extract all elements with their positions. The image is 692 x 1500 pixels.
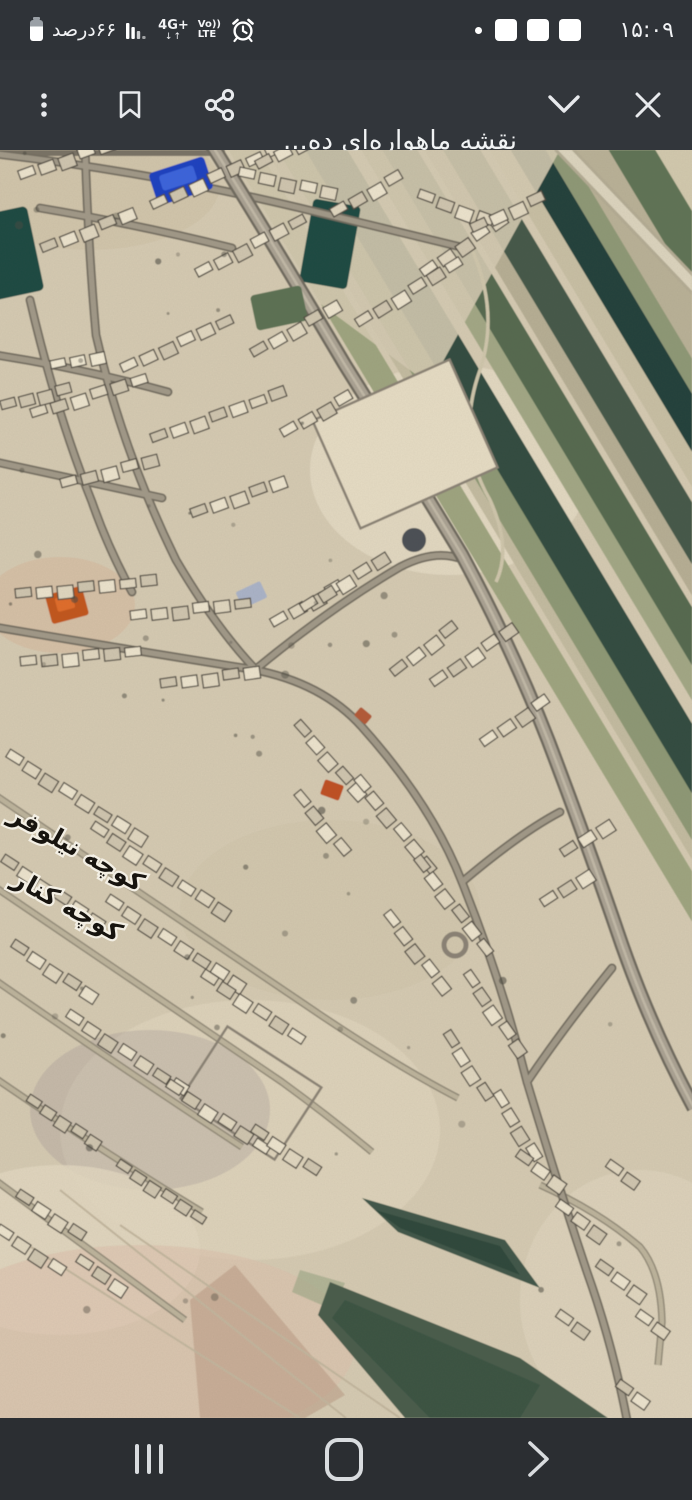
bookmark-button[interactable] xyxy=(102,60,158,150)
volte-indicator: Vo)) LTE xyxy=(198,20,221,40)
recents-button[interactable] xyxy=(118,1429,180,1489)
browser-header-bar: نقشه ماهواره‌ای ده... topomap.ir xyxy=(0,60,692,150)
status-bar: ۶۶درصد 4G+ ↓↑ Vo)) LTE xyxy=(0,0,692,60)
status-left-cluster: ۶۶درصد 4G+ ↓↑ Vo)) LTE xyxy=(0,17,256,43)
satellite-map-view[interactable]: کوچه نیلوفر کوچه کنار xyxy=(0,150,692,1418)
back-button[interactable] xyxy=(508,1429,570,1489)
minimize-button[interactable] xyxy=(536,60,592,150)
notification-dot-icon xyxy=(475,27,482,34)
overflow-menu-button[interactable] xyxy=(16,60,72,150)
android-nav-bar xyxy=(0,1418,692,1500)
home-icon xyxy=(325,1438,363,1481)
home-button[interactable] xyxy=(313,1429,375,1489)
chevron-down-icon xyxy=(547,94,581,116)
alarm-clock-icon xyxy=(230,17,256,43)
share-button[interactable] xyxy=(192,60,248,150)
satellite-map-image: کوچه نیلوفر کوچه کنار xyxy=(0,150,692,1418)
battery-icon xyxy=(30,20,43,41)
battery-percent-label: ۶۶درصد xyxy=(52,19,116,41)
notification-square-icon xyxy=(527,19,549,41)
recents-icon xyxy=(135,1444,163,1474)
phone-screen: ۶۶درصد 4G+ ↓↑ Vo)) LTE xyxy=(0,0,692,1500)
close-icon xyxy=(634,91,662,119)
close-button[interactable] xyxy=(620,60,676,150)
overflow-menu-icon xyxy=(31,92,57,118)
back-chevron-icon xyxy=(526,1439,552,1479)
signal-bars-icon xyxy=(125,18,149,42)
network-type-indicator: 4G+ ↓↑ xyxy=(158,19,189,42)
share-icon xyxy=(203,87,237,123)
notification-square-icon xyxy=(559,19,581,41)
notification-square-icon xyxy=(495,19,517,41)
clock-label: ۱۵:۰۹ xyxy=(619,18,674,43)
bookmark-icon xyxy=(117,90,143,120)
status-right-cluster: ۱۵:۰۹ xyxy=(475,18,692,43)
